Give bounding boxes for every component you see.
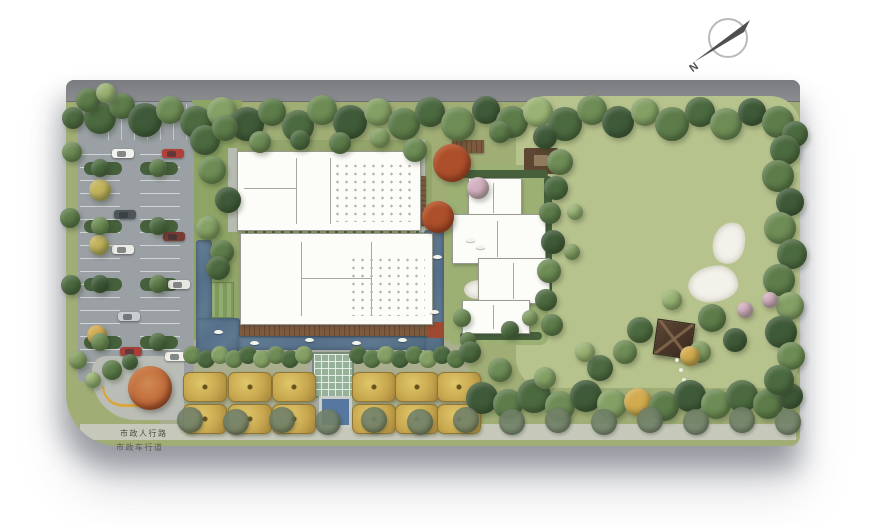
building-wall <box>513 263 514 299</box>
car-windshield <box>125 349 134 355</box>
north-label: N <box>687 60 701 72</box>
parked-car <box>114 210 136 219</box>
parking-stalls-top <box>96 104 192 140</box>
clubhouse-main <box>240 233 433 325</box>
car-windshield <box>170 354 179 360</box>
car-windshield <box>119 212 128 218</box>
parked-car <box>112 149 134 158</box>
water-bird <box>433 255 442 259</box>
parking-hedge <box>84 336 122 349</box>
parking-stalls-right <box>140 142 180 368</box>
building-wall <box>244 188 296 189</box>
road-label-vehicular: 市政车行道 <box>116 442 164 453</box>
parked-car <box>118 312 140 321</box>
glass-canopy <box>312 352 354 398</box>
water-bird <box>305 338 314 342</box>
stepping-stone <box>673 396 677 400</box>
water-bird <box>430 310 439 314</box>
building-wall <box>493 305 494 329</box>
parked-car <box>162 149 184 158</box>
villa-wing <box>468 178 522 218</box>
building-wall <box>330 158 331 224</box>
clubhouse-north <box>237 151 421 231</box>
master-plan-board <box>66 80 800 446</box>
car-windshield <box>123 314 132 320</box>
sidewalk-band <box>80 424 796 440</box>
water-bird <box>476 245 485 249</box>
building-wall <box>296 158 297 224</box>
parking-hedge <box>84 162 122 175</box>
parking-hedge <box>140 336 178 349</box>
garden-pavilion <box>653 319 696 360</box>
building-wall <box>497 221 498 257</box>
water-bird <box>214 330 223 334</box>
stepping-stone <box>669 404 673 408</box>
path-west <box>228 148 237 232</box>
villa-wing <box>478 258 550 304</box>
parked-car <box>163 232 185 241</box>
building-wall <box>493 183 494 213</box>
building-wall <box>301 242 302 316</box>
building-furniture <box>349 256 425 316</box>
water-bird <box>466 238 475 242</box>
villa-wing <box>462 300 530 334</box>
parked-car <box>112 245 134 254</box>
roof-trellis-inner <box>534 155 548 166</box>
parking-hedge <box>140 162 178 175</box>
car-windshield <box>117 151 126 157</box>
parking-stalls-left <box>80 142 120 368</box>
water-bird <box>398 338 407 342</box>
stepping-stone <box>682 378 686 382</box>
car-windshield <box>117 247 126 253</box>
water-bird <box>352 341 361 345</box>
pool-south-arm <box>238 334 428 350</box>
parked-car <box>168 280 190 289</box>
parked-car <box>120 347 142 356</box>
stepping-stone <box>675 358 679 362</box>
north-deck <box>452 140 484 153</box>
car-windshield <box>168 234 177 240</box>
parking-hedge <box>84 220 122 233</box>
car-windshield <box>167 151 176 157</box>
pool-west-pocket <box>196 318 240 352</box>
building-furniture <box>333 162 413 222</box>
stepping-stone <box>679 368 683 372</box>
villa-hedge-north <box>456 170 548 178</box>
parked-car <box>165 352 187 361</box>
water-bird <box>250 341 259 345</box>
axis-water-square <box>319 396 352 428</box>
site-plan-stage: 市政人行路 市政车行道 N <box>0 0 882 526</box>
north-arrow-icon: N <box>686 14 760 72</box>
car-windshield <box>173 282 182 288</box>
parking-hedge <box>84 278 122 291</box>
stepping-stone <box>678 388 682 392</box>
road-label-pedestrian: 市政人行路 <box>120 428 168 439</box>
